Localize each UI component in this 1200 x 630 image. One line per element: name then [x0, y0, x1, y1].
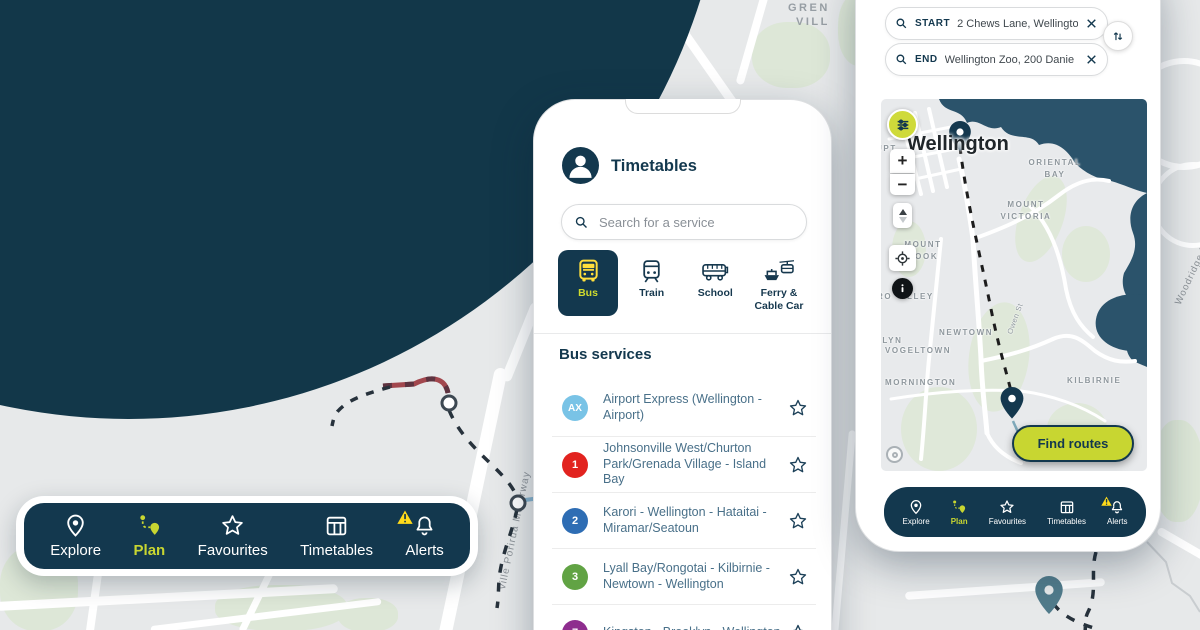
tab-label: Bus	[578, 287, 598, 300]
map-filter-button[interactable]	[887, 109, 918, 140]
warning-triangle-icon	[1099, 494, 1114, 508]
locate-icon	[894, 250, 911, 267]
route-badge: 7	[562, 620, 588, 630]
service-row-airport-express[interactable]: AX Airport Express (Wellington - Airport…	[552, 380, 816, 436]
zoom-in-button[interactable]: +	[890, 149, 915, 173]
map-place-label: MORNINGTON	[885, 377, 956, 389]
service-row-2[interactable]: 2 Karori - Wellington - Hataitai - Miram…	[552, 492, 816, 548]
nav-label: Plan	[951, 517, 968, 526]
nav-label: Explore	[50, 542, 101, 559]
swap-arrows-icon	[1111, 29, 1125, 43]
swap-start-end-button[interactable]	[1103, 21, 1133, 51]
nav-label: Favourites	[989, 517, 1026, 526]
ferry-cable-car-icon	[763, 259, 794, 283]
nav-label: Explore	[903, 517, 930, 526]
tab-label: School	[698, 287, 733, 300]
service-name: Johnsonville West/Churton Park/Grenada V…	[603, 441, 782, 488]
end-value: Wellington Zoo, 200 Danie	[945, 54, 1078, 66]
nav-item-timetables[interactable]: Timetables	[300, 513, 373, 559]
service-row-3[interactable]: 3 Lyall Bay/Rongotai - Kilbirnie - Newto…	[552, 548, 816, 604]
nav-item-plan[interactable]: Plan	[951, 499, 968, 526]
school-bus-icon	[702, 259, 729, 283]
section-divider	[534, 333, 831, 334]
zoom-out-button[interactable]: −	[890, 174, 915, 195]
locate-button[interactable]	[889, 245, 916, 271]
service-name: Kingston - Brooklyn - Wellington	[603, 625, 782, 630]
nav-item-favourites[interactable]: Favourites	[198, 513, 268, 559]
timetables-phone: Timetables Bus Train School Ferry & Cabl…	[533, 99, 832, 630]
train-icon	[641, 259, 662, 283]
location-pin-icon	[908, 499, 924, 515]
phone-notch	[625, 99, 741, 114]
journey-map[interactable]: Wellington ORIENTAL BAY MOUNT VICTORIA M…	[881, 99, 1147, 471]
favourite-star-icon[interactable]	[788, 567, 808, 587]
compass-control[interactable]	[893, 203, 912, 228]
start-field[interactable]: START 2 Chews Lane, Wellingto	[885, 7, 1108, 40]
nav-item-alerts[interactable]: Alerts	[1107, 499, 1127, 526]
tab-ferry-cable-car[interactable]: Ferry & Cable Car	[749, 250, 809, 320]
favourite-star-icon[interactable]	[788, 511, 808, 531]
bus-services-heading: Bus services	[559, 346, 652, 363]
bus-icon	[577, 259, 600, 283]
city-label: Wellington	[907, 133, 1009, 156]
end-field[interactable]: END Wellington Zoo, 200 Danie	[885, 43, 1108, 76]
page-title: Timetables	[611, 157, 697, 176]
nav-item-timetables[interactable]: Timetables	[1047, 499, 1086, 526]
favourite-star-icon[interactable]	[788, 623, 808, 630]
service-search[interactable]	[561, 204, 807, 240]
service-name: Lyall Bay/Rongotai - Kilbirnie - Newtown…	[603, 561, 782, 592]
start-label: START	[915, 18, 950, 29]
phone-nav-bar: Explore Plan Favourites Timetables Alert…	[884, 487, 1146, 537]
route-badge: 1	[562, 452, 588, 478]
sliders-icon	[895, 117, 911, 133]
timetable-grid-icon	[1059, 499, 1075, 515]
info-button[interactable]	[892, 278, 913, 299]
nav-label: Favourites	[198, 542, 268, 559]
start-value: 2 Chews Lane, Wellingto	[957, 18, 1078, 30]
map-attribution-logo[interactable]	[886, 446, 903, 463]
find-routes-button[interactable]: Find routes	[1012, 425, 1134, 462]
map-place-label: MOUNT VICTORIA	[993, 199, 1059, 223]
main-nav-bar: Explore Plan Favourites Timetables Alert…	[24, 503, 470, 569]
tab-label: Train	[639, 287, 664, 300]
nav-item-favourites[interactable]: Favourites	[989, 499, 1026, 526]
nav-item-explore[interactable]: Explore	[903, 499, 930, 526]
clear-icon[interactable]	[1085, 53, 1098, 66]
star-icon	[220, 513, 245, 538]
nav-label: Alerts	[405, 542, 443, 559]
favourite-star-icon[interactable]	[788, 398, 808, 418]
route-plan-icon	[951, 499, 967, 515]
planner-phone: START 2 Chews Lane, Wellingto END Wellin…	[855, 0, 1161, 552]
nav-label: Timetables	[300, 542, 373, 559]
map-place-label: ORIENTAL BAY	[1019, 157, 1091, 181]
search-icon	[895, 53, 908, 66]
nav-item-explore[interactable]: Explore	[50, 513, 101, 559]
profile-avatar[interactable]	[562, 147, 599, 184]
nav-label: Timetables	[1047, 517, 1086, 526]
star-icon	[999, 499, 1015, 515]
route-badge: 2	[562, 508, 588, 534]
nav-item-plan[interactable]: Plan	[134, 513, 166, 559]
clear-icon[interactable]	[1085, 17, 1098, 30]
search-input[interactable]	[597, 214, 794, 231]
map-place-label: RO	[881, 291, 892, 303]
map-place-label: KLYN	[881, 335, 902, 347]
mode-tabs: Bus Train School Ferry & Cable Car	[558, 250, 809, 320]
tab-bus[interactable]: Bus	[558, 250, 618, 316]
info-icon	[897, 283, 908, 294]
service-row-7[interactable]: 7 Kingston - Brooklyn - Wellington	[552, 604, 816, 630]
tab-label: Ferry & Cable Car	[749, 287, 809, 313]
tab-train[interactable]: Train	[622, 250, 682, 320]
promo-canvas: GREN VILL ville Porirua Motorway Woodrid…	[0, 0, 1200, 630]
search-icon	[574, 215, 589, 230]
route-badge: 3	[562, 564, 588, 590]
service-name: Airport Express (Wellington - Airport)	[603, 392, 782, 423]
end-label: END	[915, 54, 938, 65]
nav-item-alerts[interactable]: Alerts	[405, 513, 443, 559]
location-pin-icon	[63, 513, 88, 538]
tab-school[interactable]: School	[685, 250, 745, 320]
route-plan-icon	[137, 513, 162, 538]
nav-label: Plan	[134, 542, 166, 559]
route-badge: AX	[562, 395, 588, 421]
timetable-grid-icon	[324, 513, 349, 538]
warning-triangle-icon	[394, 507, 416, 527]
search-icon	[895, 17, 908, 30]
map-place-label: KILBIRNIE	[1067, 375, 1121, 387]
compass-icon	[898, 208, 908, 224]
nav-label: Alerts	[1107, 517, 1127, 526]
service-row-1[interactable]: 1 Johnsonville West/Churton Park/Grenada…	[552, 436, 816, 492]
service-name: Karori - Wellington - Hataitai - Miramar…	[603, 505, 782, 536]
floating-nav-card: Explore Plan Favourites Timetables Alert…	[16, 496, 478, 576]
favourite-star-icon[interactable]	[788, 455, 808, 475]
map-place-label: NEWTOWN	[939, 327, 993, 339]
